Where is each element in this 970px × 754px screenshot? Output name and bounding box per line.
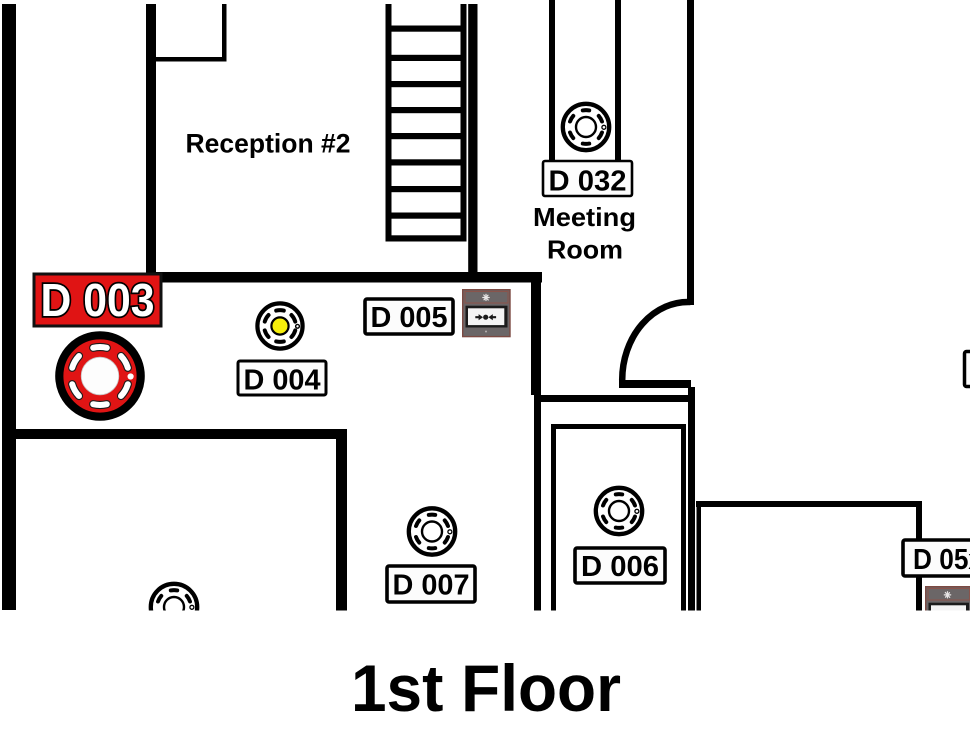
svg-text:Meeting: Meeting bbox=[533, 202, 636, 232]
svg-text:D 032: D 032 bbox=[549, 166, 627, 198]
svg-text:D 007: D 007 bbox=[393, 570, 470, 602]
svg-text:D 006: D 006 bbox=[581, 551, 659, 583]
svg-text:Room: Room bbox=[547, 234, 623, 264]
svg-text:D 003: D 003 bbox=[41, 274, 155, 326]
svg-text:D 005: D 005 bbox=[371, 302, 448, 334]
svg-text:D 004: D 004 bbox=[244, 365, 321, 397]
svg-text:D 05x: D 05x bbox=[913, 544, 970, 576]
svg-text:Reception #2: Reception #2 bbox=[186, 129, 351, 159]
svg-text:1st Floor: 1st Floor bbox=[351, 651, 621, 725]
